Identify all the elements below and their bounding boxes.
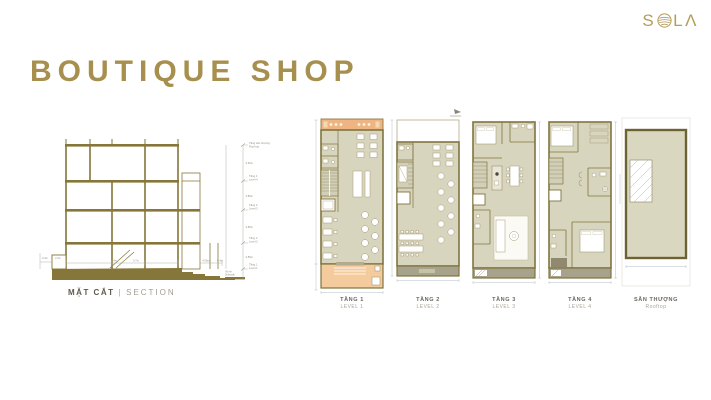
svg-text:0.4m: 0.4m — [42, 256, 48, 260]
plan3-caption: TẦNG 3 LEVEL 3 — [466, 297, 542, 310]
plan2-void — [397, 120, 459, 142]
plan4-caption-vi: TẦNG 4 — [542, 297, 618, 303]
svg-text:5.4m: 5.4m — [111, 259, 117, 263]
svg-text:3.80m: 3.80m — [246, 225, 254, 229]
plan4-stair — [549, 158, 563, 184]
level-3-label-vi: Tầng 3 — [249, 203, 258, 207]
level-roof-label-en: Roof top — [249, 144, 260, 148]
floor-plan-level-3: TẦNG 3 LEVEL 3 — [466, 114, 542, 310]
spiral-shell-o-icon — [657, 13, 672, 28]
svg-text:2.4m: 2.4m — [55, 256, 61, 260]
plan4-balcony — [549, 268, 611, 278]
plan3-caption-en: LEVEL 3 — [466, 304, 542, 310]
plan3-dining-table — [507, 166, 523, 186]
presentation-slide: S L Λ BOUTIQUE SHOP — [0, 0, 711, 400]
height-4: 3.60m — [246, 161, 254, 165]
plan4-caption-en: LEVEL 4 — [542, 304, 618, 310]
section-caption: MẶT CẮT|SECTION — [68, 288, 176, 297]
level-3-label-en: Level 3 — [249, 206, 258, 210]
section-structure — [52, 139, 245, 280]
plan2-elevator — [397, 192, 410, 204]
plan3-living-room — [494, 216, 528, 260]
plan5-caption: SÂN THƯỢNG Rooftop — [618, 297, 694, 310]
plan4-bedroom-bottom — [580, 230, 604, 252]
plan1-entry-terrace — [321, 262, 383, 288]
section-bottom-dimensions: 0.4m 2.4m 5.4m 0.7m 4.05m 0.4m — [42, 256, 223, 263]
svg-text:0.7m: 0.7m — [133, 259, 139, 263]
plan3-elevator — [473, 194, 485, 205]
floor-plan-level-4: TẦNG 4 LEVEL 4 — [542, 114, 618, 310]
plan1-caption-en: LEVEL 1 — [314, 304, 390, 310]
logo-letter-a: Λ — [685, 12, 699, 29]
floor-plan-level-1: TẦNG 1 LEVEL 1 — [314, 114, 390, 310]
level-2-label-vi: Tầng 2 — [249, 236, 258, 240]
level-4-label-en: Level 4 — [249, 177, 258, 181]
plan2-caption: TẦNG 2 LEVEL 2 — [390, 297, 466, 310]
svg-text:3.80m: 3.80m — [246, 194, 254, 198]
page-title: BOUTIQUE SHOP — [30, 55, 360, 89]
plan1-caption: TẦNG 1 LEVEL 1 — [314, 297, 390, 310]
logo-letter-s: S — [642, 12, 656, 29]
plan2-stair — [397, 162, 413, 188]
plan3-caption-vi: TẦNG 3 — [466, 297, 542, 303]
level-roof-label-vi: Tầng sân thượng — [249, 141, 270, 145]
level-4-label-vi: Tầng 4 — [249, 174, 258, 178]
ground-mass — [52, 268, 235, 280]
plan3-bedroom — [476, 126, 496, 144]
plan5-skylight — [630, 160, 652, 202]
plan3-stair — [473, 162, 487, 188]
plan4-caption: TẦNG 4 LEVEL 4 — [542, 297, 618, 310]
building-section-drawing: 0.4m 2.4m 5.4m 0.7m 4.05m 0.4m T — [30, 122, 310, 307]
ground-label-en: Sidewalk — [225, 273, 235, 276]
plan3-balcony — [473, 268, 535, 278]
plan2-caption-en: LEVEL 2 — [390, 304, 466, 310]
floor-plan-level-2: TẦNG 2 LEVEL 2 — [390, 114, 466, 310]
section-dimension-lines — [40, 145, 226, 269]
level-1-label-en: Level 1 — [249, 266, 258, 270]
level-1-label-vi: Tầng 1 — [249, 263, 258, 267]
plan1-stair — [321, 170, 338, 196]
plan5-caption-en: Rooftop — [618, 304, 694, 310]
plan3-kitchen — [492, 166, 502, 190]
plan5-caption-vi: SÂN THƯỢNG — [618, 297, 694, 303]
brand-logo: S L Λ — [642, 12, 699, 29]
plan1-caption-vi: TẦNG 1 — [314, 297, 390, 303]
plan2-caption-vi: TẦNG 2 — [390, 297, 466, 303]
svg-text:4.05m: 4.05m — [202, 259, 209, 263]
svg-text:3.85m: 3.85m — [246, 255, 254, 259]
floor-plan-rooftop: SÂN THƯỢNG Rooftop — [618, 114, 694, 310]
section-caption-separator: | — [115, 288, 127, 297]
level-2-label-en: Level 2 — [249, 239, 258, 243]
plan2-balcony — [397, 266, 459, 276]
plan4-terrace-door — [551, 258, 567, 267]
plan4-bedroom-top — [551, 126, 573, 146]
section-caption-vi: MẶT CẮT — [68, 288, 115, 297]
section-caption-en: SECTION — [126, 288, 176, 297]
logo-letter-l: L — [673, 12, 685, 29]
plan4-elevator — [549, 190, 561, 201]
section-level-annotations: Tầng sân thượng Roof top 3.60m Tầng 4 Le… — [225, 141, 270, 279]
plan1-awning — [321, 119, 383, 130]
svg-text:0.4m: 0.4m — [217, 259, 223, 263]
